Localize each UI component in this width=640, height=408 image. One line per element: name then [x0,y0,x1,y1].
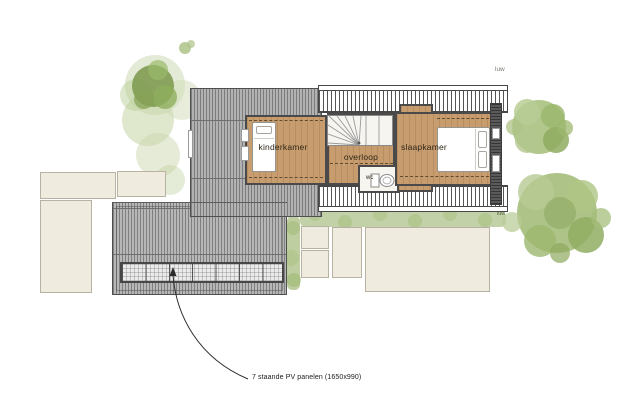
label-kinderkamer: kinderkamer [248,142,318,152]
neighbor-building [365,227,490,292]
pillow [478,131,487,148]
pv-annotation: 7 staande PV panelen (1650x990) [252,374,361,381]
room-wc [358,165,400,193]
label-luw-top: luw [495,66,505,73]
stair-treads [328,116,392,145]
label-luw-hedge: luw [497,211,505,217]
label-wc: wc [366,175,373,181]
roof-overhang-dashed [249,177,323,178]
neighbor-building [40,200,92,293]
tree-icon [502,173,611,263]
solar-panel-icon [120,262,284,283]
roof-overhang-dashed [249,120,323,121]
stairs-icon [327,115,393,146]
label-slaapkamer: slaapkamer [389,142,459,152]
neighbor-building [332,227,362,278]
bed-fold-line [475,129,476,170]
pillow [478,151,487,168]
roof-overhang-dashed [437,118,489,119]
neighbor-building [301,250,329,278]
tree-icon [506,99,573,154]
window-opening [241,129,249,142]
roof-ridge-line [113,254,286,255]
neighbor-building [40,172,116,199]
window-opening [492,155,500,172]
neighbor-building [117,171,166,197]
floorplan-canvas: kinderkamer overloop wc slaapkamer luw l… [0,0,640,408]
bed-fold-line [254,138,274,139]
headroom-dashed [330,163,393,164]
roof-overhang-dashed [400,176,489,177]
neighbor-building [301,226,329,249]
pillow [256,126,272,134]
window-opening [492,128,500,139]
label-overloop: overloop [327,152,395,162]
roof-junction-line [112,202,287,203]
east-wall [490,103,502,205]
window-opening [188,130,193,158]
